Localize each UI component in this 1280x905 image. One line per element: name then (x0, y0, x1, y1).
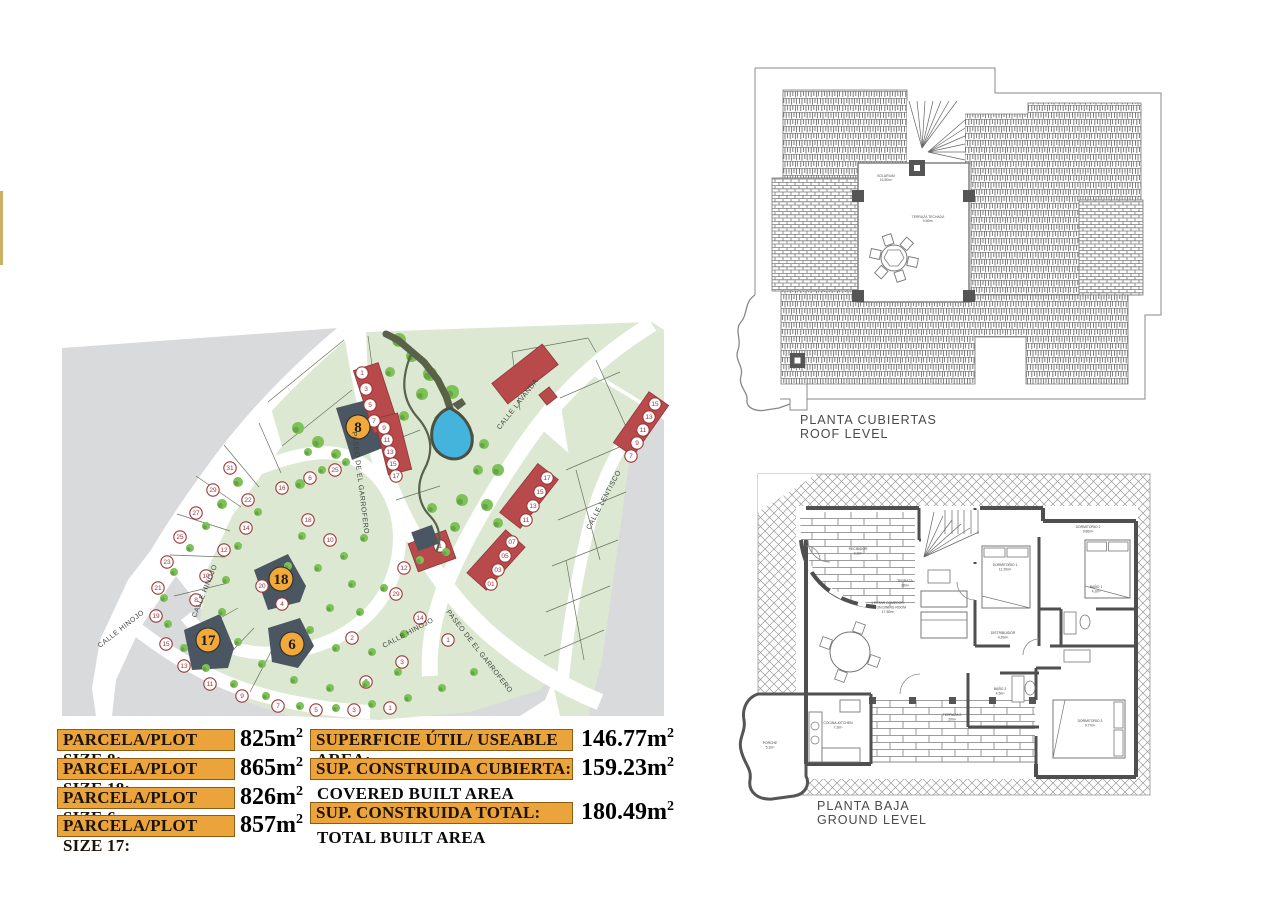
svg-text:BAÑO 1: BAÑO 1 (1090, 584, 1103, 589)
svg-text:4.20m²: 4.20m² (998, 636, 1009, 640)
svg-text:3: 3 (352, 707, 356, 714)
svg-text:29: 29 (392, 591, 400, 598)
svg-text:15: 15 (536, 489, 544, 496)
svg-text:17: 17 (543, 475, 551, 482)
svg-text:DORMITORIO 1: DORMITORIO 1 (993, 563, 1018, 567)
svg-text:15: 15 (389, 461, 397, 468)
svg-text:15: 15 (651, 401, 659, 408)
svg-text:27: 27 (192, 510, 200, 517)
svg-text:6: 6 (288, 637, 296, 653)
svg-text:18: 18 (304, 517, 312, 524)
svg-text:9: 9 (382, 425, 386, 432)
svg-text:12: 12 (400, 565, 408, 572)
svg-text:DISTRIBUIDOR: DISTRIBUIDOR (991, 631, 1016, 635)
svg-text:GROUND LEVEL: GROUND LEVEL (817, 813, 927, 827)
svg-text:COCINA-KITCHEN: COCINA-KITCHEN (823, 721, 853, 725)
svg-text:9: 9 (240, 693, 244, 700)
svg-text:15: 15 (162, 641, 170, 648)
svg-text:9.50m²: 9.50m² (923, 219, 934, 223)
svg-text:PLANTA CUBIERTAS: PLANTA CUBIERTAS (800, 413, 937, 427)
svg-text:31: 31 (226, 465, 234, 472)
svg-text:16: 16 (278, 485, 286, 492)
svg-text:4.5m²: 4.5m² (996, 692, 1006, 696)
svg-text:3: 3 (364, 386, 368, 393)
svg-text:BAÑO 2: BAÑO 2 (994, 686, 1007, 691)
svg-text:18: 18 (274, 572, 289, 588)
svg-text:5: 5 (368, 402, 372, 409)
svg-text:07: 07 (508, 539, 516, 546)
svg-text:PORCHE: PORCHE (763, 741, 778, 745)
svg-text:7: 7 (629, 453, 633, 460)
svg-text:7: 7 (276, 703, 280, 710)
svg-text:9: 9 (635, 440, 639, 447)
svg-text:9.77m²: 9.77m² (1085, 724, 1096, 728)
svg-text:1: 1 (388, 705, 392, 712)
svg-text:13: 13 (645, 414, 653, 421)
svg-text:20m²: 20m² (948, 718, 957, 722)
svg-text:13: 13 (180, 663, 188, 670)
svg-text:23: 23 (163, 559, 171, 566)
svg-text:7.2m²: 7.2m² (834, 726, 844, 730)
svg-text:TERRAZA: TERRAZA (897, 579, 914, 583)
svg-text:TERRAZA 2: TERRAZA 2 (943, 713, 962, 717)
svg-text:25: 25 (176, 534, 184, 541)
svg-text:13: 13 (386, 449, 394, 456)
svg-text:RECIBIDOR: RECIBIDOR (849, 547, 868, 551)
svg-text:03: 03 (494, 567, 502, 574)
svg-text:11: 11 (207, 681, 214, 688)
svg-text:11: 11 (384, 437, 391, 444)
svg-text:SALON DINING ROOM: SALON DINING ROOM (870, 606, 906, 610)
svg-text:3.2m²: 3.2m² (854, 552, 864, 556)
svg-text:4: 4 (280, 601, 284, 608)
svg-text:25: 25 (331, 467, 339, 474)
svg-text:3: 3 (400, 659, 404, 666)
svg-text:4.2m²: 4.2m² (1092, 590, 1102, 594)
svg-text:1 ESTAR COMEDOR-: 1 ESTAR COMEDOR- (871, 601, 905, 605)
svg-text:14: 14 (242, 525, 250, 532)
svg-text:05: 05 (501, 553, 509, 560)
svg-text:11.20m²: 11.20m² (999, 568, 1012, 572)
svg-text:12: 12 (220, 547, 228, 554)
svg-text:28m²: 28m² (901, 584, 910, 588)
svg-text:9.80m²: 9.80m² (1083, 530, 1094, 534)
svg-text:7: 7 (372, 418, 376, 425)
svg-text:DORMITORIO 3: DORMITORIO 3 (1078, 719, 1103, 723)
svg-text:29: 29 (209, 487, 217, 494)
svg-text:11: 11 (523, 517, 530, 524)
svg-text:17.50m²: 17.50m² (882, 610, 895, 614)
svg-text:20: 20 (258, 583, 266, 590)
svg-text:17: 17 (201, 633, 217, 649)
svg-text:16.50m²: 16.50m² (880, 178, 893, 182)
svg-text:1: 1 (446, 637, 450, 644)
svg-text:DORMITORIO 2: DORMITORIO 2 (1076, 525, 1101, 529)
svg-text:01: 01 (487, 581, 495, 588)
svg-text:ROOF LEVEL: ROOF LEVEL (800, 427, 889, 441)
svg-text:19: 19 (152, 613, 160, 620)
svg-text:21: 21 (154, 585, 162, 592)
svg-text:11: 11 (640, 427, 647, 434)
svg-text:13: 13 (529, 503, 537, 510)
svg-text:5: 5 (314, 707, 318, 714)
svg-text:10: 10 (326, 537, 334, 544)
svg-text:5.2m²: 5.2m² (766, 746, 776, 750)
svg-text:22: 22 (244, 497, 252, 504)
svg-text:PLANTA BAJA: PLANTA BAJA (817, 799, 910, 813)
svg-text:17: 17 (392, 473, 400, 480)
svg-text:6: 6 (308, 475, 312, 482)
svg-text:2: 2 (350, 635, 354, 642)
svg-text:1: 1 (360, 370, 364, 377)
